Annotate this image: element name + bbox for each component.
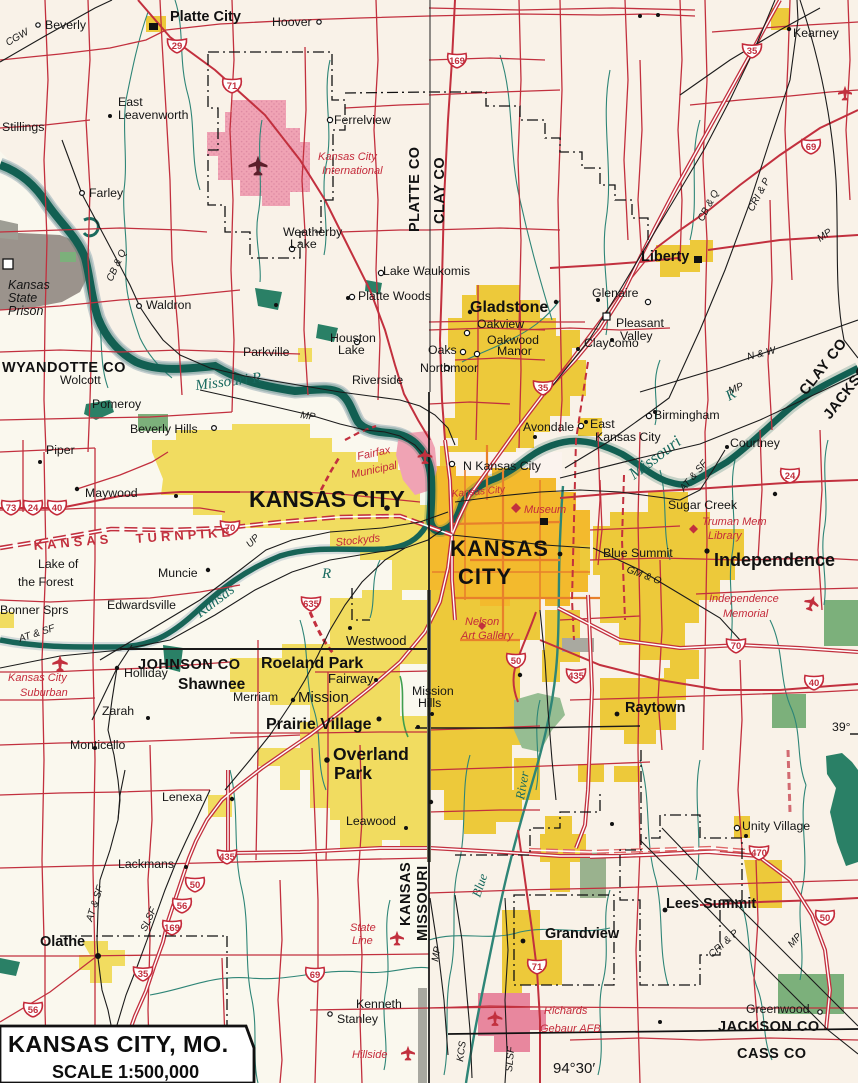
svg-text:State: State: [350, 922, 376, 934]
svg-text:Avondale: Avondale: [523, 420, 574, 434]
svg-text:Nelson: Nelson: [465, 616, 499, 628]
svg-text:Leavenworth: Leavenworth: [118, 108, 189, 122]
svg-text:Fairway: Fairway: [328, 671, 374, 686]
svg-text:Bonner Sprs: Bonner Sprs: [0, 603, 68, 617]
svg-text:Stanley: Stanley: [337, 1012, 379, 1026]
svg-text:Parkville: Parkville: [243, 345, 290, 359]
svg-text:PLATTE CO: PLATTE CO: [407, 146, 423, 232]
svg-text:Independence: Independence: [709, 593, 779, 605]
svg-text:Overland: Overland: [333, 744, 409, 764]
svg-text:R: R: [321, 566, 331, 582]
svg-text:East: East: [118, 95, 143, 109]
svg-text:Hills: Hills: [418, 696, 441, 710]
svg-text:CLAY CO: CLAY CO: [432, 157, 448, 224]
svg-text:Richards: Richards: [544, 1005, 588, 1017]
svg-text:Kearney: Kearney: [793, 26, 840, 40]
svg-text:Glenaire: Glenaire: [592, 286, 639, 300]
svg-text:Lackmans: Lackmans: [118, 857, 174, 871]
svg-text:Oakview: Oakview: [477, 317, 524, 331]
svg-text:Unity Village: Unity Village: [742, 819, 810, 833]
svg-text:Riverside: Riverside: [352, 373, 403, 387]
svg-text:JOHNSON CO: JOHNSON CO: [138, 657, 241, 673]
svg-text:94°30′: 94°30′: [553, 1060, 595, 1077]
svg-text:Edwardsville: Edwardsville: [107, 598, 176, 612]
svg-text:Manor: Manor: [497, 344, 532, 358]
svg-text:WYANDOTTE CO: WYANDOTTE CO: [2, 360, 126, 376]
svg-text:Courtney: Courtney: [730, 436, 781, 450]
svg-text:70: 70: [731, 641, 742, 652]
svg-text:Waldron: Waldron: [146, 298, 191, 312]
svg-text:35: 35: [747, 46, 758, 57]
svg-text:Zarah: Zarah: [102, 704, 134, 718]
svg-text:Claycomo: Claycomo: [584, 336, 639, 350]
svg-text:Lake of: Lake of: [38, 557, 79, 571]
svg-text:Kansas City: Kansas City: [8, 672, 68, 684]
svg-text:Hoover: Hoover: [272, 15, 312, 29]
svg-text:Lake Waukomis: Lake Waukomis: [383, 264, 470, 278]
svg-text:Oaks: Oaks: [428, 343, 457, 357]
svg-text:Kansas City: Kansas City: [318, 151, 378, 163]
svg-text:Muncie: Muncie: [158, 566, 198, 580]
svg-text:Raytown: Raytown: [625, 700, 685, 716]
svg-text:Park: Park: [334, 763, 372, 783]
svg-text:Maywood: Maywood: [85, 486, 138, 500]
svg-text:Northmoor: Northmoor: [420, 361, 478, 375]
svg-text:East: East: [590, 417, 615, 431]
svg-text:International: International: [322, 165, 383, 177]
svg-text:N Kansas City: N Kansas City: [463, 459, 542, 473]
svg-text:Gebaur AFB: Gebaur AFB: [540, 1023, 601, 1035]
svg-text:Library: Library: [708, 530, 743, 542]
svg-text:Birmingham: Birmingham: [654, 408, 720, 422]
svg-text:169: 169: [164, 923, 180, 934]
svg-text:Prison: Prison: [8, 304, 43, 318]
svg-text:Memorial: Memorial: [723, 608, 769, 620]
svg-text:Roeland Park: Roeland Park: [261, 655, 363, 672]
svg-text:56: 56: [28, 1005, 39, 1016]
svg-text:Greenwood: Greenwood: [746, 1002, 810, 1016]
svg-text:69: 69: [806, 142, 817, 153]
svg-text:Art Gallery: Art Gallery: [460, 630, 514, 642]
svg-text:MP: MP: [300, 410, 317, 423]
svg-text:29: 29: [172, 41, 183, 52]
svg-text:State: State: [8, 291, 37, 305]
svg-text:Pleasant: Pleasant: [616, 316, 664, 330]
svg-text:KANSAS CITY, MO.: KANSAS CITY, MO.: [8, 1031, 229, 1057]
svg-text:35: 35: [538, 383, 549, 394]
svg-text:Sugar Creek: Sugar Creek: [668, 498, 738, 512]
svg-text:Grandview: Grandview: [545, 926, 620, 942]
svg-text:50: 50: [190, 880, 201, 891]
svg-text:Shawnee: Shawnee: [178, 676, 246, 693]
svg-text:SLSF: SLSF: [504, 1046, 517, 1073]
svg-text:Platte Woods: Platte Woods: [358, 289, 431, 303]
svg-text:Lake: Lake: [290, 237, 317, 251]
svg-text:Piper: Piper: [46, 443, 75, 457]
svg-text:435: 435: [568, 671, 585, 682]
svg-text:Lenexa: Lenexa: [162, 790, 203, 804]
svg-text:73: 73: [6, 503, 17, 514]
svg-text:MISSOURI: MISSOURI: [415, 865, 431, 941]
svg-text:KANSAS: KANSAS: [450, 536, 549, 561]
svg-text:71: 71: [532, 962, 543, 973]
svg-text:56: 56: [177, 901, 188, 912]
svg-text:Beverly Hills: Beverly Hills: [130, 422, 198, 436]
svg-text:Independence: Independence: [714, 550, 835, 570]
svg-text:Ferrelview: Ferrelview: [334, 113, 391, 127]
svg-text:35: 35: [138, 969, 149, 980]
svg-text:24: 24: [28, 503, 39, 514]
svg-text:JACKSON CO: JACKSON CO: [718, 1019, 820, 1035]
svg-text:KANSAS CITY: KANSAS CITY: [249, 486, 405, 512]
svg-text:the Forest: the Forest: [18, 575, 74, 589]
svg-text:Kansas: Kansas: [8, 278, 50, 292]
svg-text:CASS CO: CASS CO: [737, 1046, 807, 1062]
svg-text:71: 71: [227, 81, 238, 92]
svg-text:40: 40: [52, 503, 63, 514]
svg-text:Truman Mem: Truman Mem: [702, 516, 767, 528]
svg-text:CITY: CITY: [458, 564, 512, 589]
svg-text:24: 24: [785, 471, 796, 482]
svg-text:Suburban: Suburban: [20, 687, 68, 699]
svg-text:Farley: Farley: [89, 186, 124, 200]
svg-text:Pomeroy: Pomeroy: [92, 397, 142, 411]
svg-text:Mission: Mission: [298, 689, 349, 706]
svg-text:Blue Summit: Blue Summit: [603, 546, 673, 560]
svg-text:Leawood: Leawood: [346, 814, 396, 828]
svg-text:KANSAS: KANSAS: [398, 862, 414, 926]
svg-text:Museum: Museum: [524, 504, 566, 516]
svg-text:Gladstone: Gladstone: [470, 299, 548, 316]
svg-text:Lees Summit: Lees Summit: [666, 896, 756, 912]
svg-text:SCALE 1:500,000: SCALE 1:500,000: [52, 1062, 199, 1082]
svg-text:40: 40: [809, 678, 820, 689]
svg-text:Kansas City: Kansas City: [595, 430, 661, 444]
svg-text:50: 50: [820, 913, 831, 924]
svg-text:635: 635: [303, 599, 320, 610]
svg-text:Platte City: Platte City: [170, 9, 241, 25]
svg-text:435: 435: [219, 852, 236, 863]
svg-text:Kenneth: Kenneth: [356, 997, 402, 1011]
svg-text:Line: Line: [352, 935, 373, 947]
svg-text:Prairie Village: Prairie Village: [266, 716, 372, 733]
svg-text:Liberty: Liberty: [641, 249, 689, 265]
svg-text:470: 470: [751, 848, 767, 859]
svg-text:50: 50: [511, 656, 522, 667]
svg-text:169: 169: [449, 56, 465, 67]
svg-text:Beverly: Beverly: [45, 18, 87, 32]
svg-text:Stillings: Stillings: [2, 120, 44, 134]
svg-text:39°: 39°: [832, 720, 851, 734]
svg-text:Lake: Lake: [338, 343, 365, 357]
svg-text:Olathe: Olathe: [40, 934, 85, 950]
svg-text:Monticello: Monticello: [70, 738, 126, 752]
svg-text:Westwood: Westwood: [346, 633, 406, 648]
svg-text:Hillside: Hillside: [352, 1049, 387, 1061]
svg-text:69: 69: [310, 970, 321, 981]
